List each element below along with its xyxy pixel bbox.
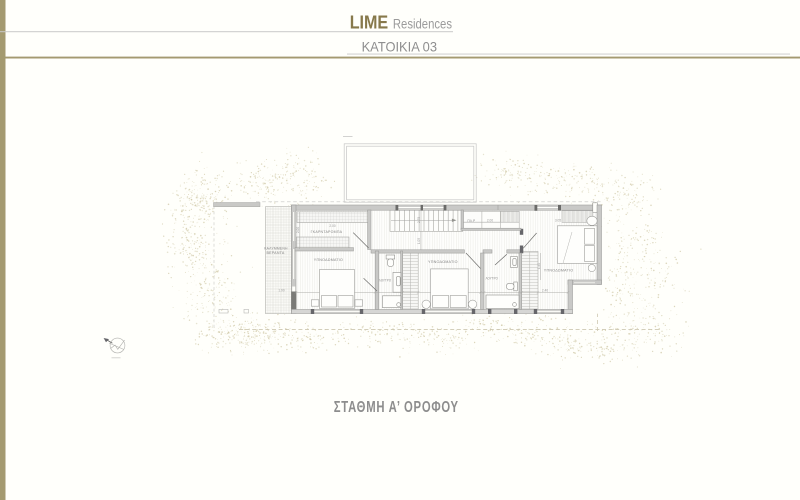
svg-text:LIME: LIME xyxy=(350,12,389,33)
svg-text:Residences: Residences xyxy=(393,17,452,32)
svg-text:3.05: 3.05 xyxy=(555,219,561,223)
svg-text:2.40: 2.40 xyxy=(542,288,548,292)
svg-text:ΚΑΤΟΙΚΙΑ 03: ΚΑΤΟΙΚΙΑ 03 xyxy=(362,39,438,54)
svg-text:ΒΕΡΑΝΤΑ: ΒΕΡΑΝΤΑ xyxy=(267,250,285,255)
svg-text:ΣΤΑΘΜΗ Α’ ΟΡΟΦΟΥ: ΣΤΑΘΜΗ Α’ ΟΡΟΦΟΥ xyxy=(334,399,459,416)
svg-text:1.90: 1.90 xyxy=(278,288,284,292)
svg-text:2.00: 2.00 xyxy=(487,218,493,222)
svg-text:ΥΠΝΟΔΩΜΑΤΙΟ: ΥΠΝΟΔΩΜΑΤΙΟ xyxy=(314,257,343,262)
svg-text:ΥΠΝΟΔΩΜΑΤΙΟ: ΥΠΝΟΔΩΜΑΤΙΟ xyxy=(544,268,574,273)
svg-text:1.05: 1.05 xyxy=(417,238,421,244)
svg-text:2.00: 2.00 xyxy=(296,227,300,233)
svg-text:ΥΠΝΟΔΩΜΑΤΙΟ: ΥΠΝΟΔΩΜΑΤΙΟ xyxy=(428,259,458,264)
svg-text:ΠΛ.Ρ: ΠΛ.Ρ xyxy=(468,218,476,223)
svg-text:1.40: 1.40 xyxy=(537,263,541,269)
svg-text:ΛΟΥΤΡΟ: ΛΟΥΤΡΟ xyxy=(486,275,498,280)
svg-text:ΛΟΥΤΡΟ: ΛΟΥΤΡΟ xyxy=(379,277,391,282)
svg-text:2.00: 2.00 xyxy=(329,224,335,228)
svg-text:2.75: 2.75 xyxy=(417,217,421,223)
svg-text:ΓΚΑΡΝΤΑΡΟΜΠΑ: ΓΚΑΡΝΤΑΡΟΜΠΑ xyxy=(311,229,343,234)
